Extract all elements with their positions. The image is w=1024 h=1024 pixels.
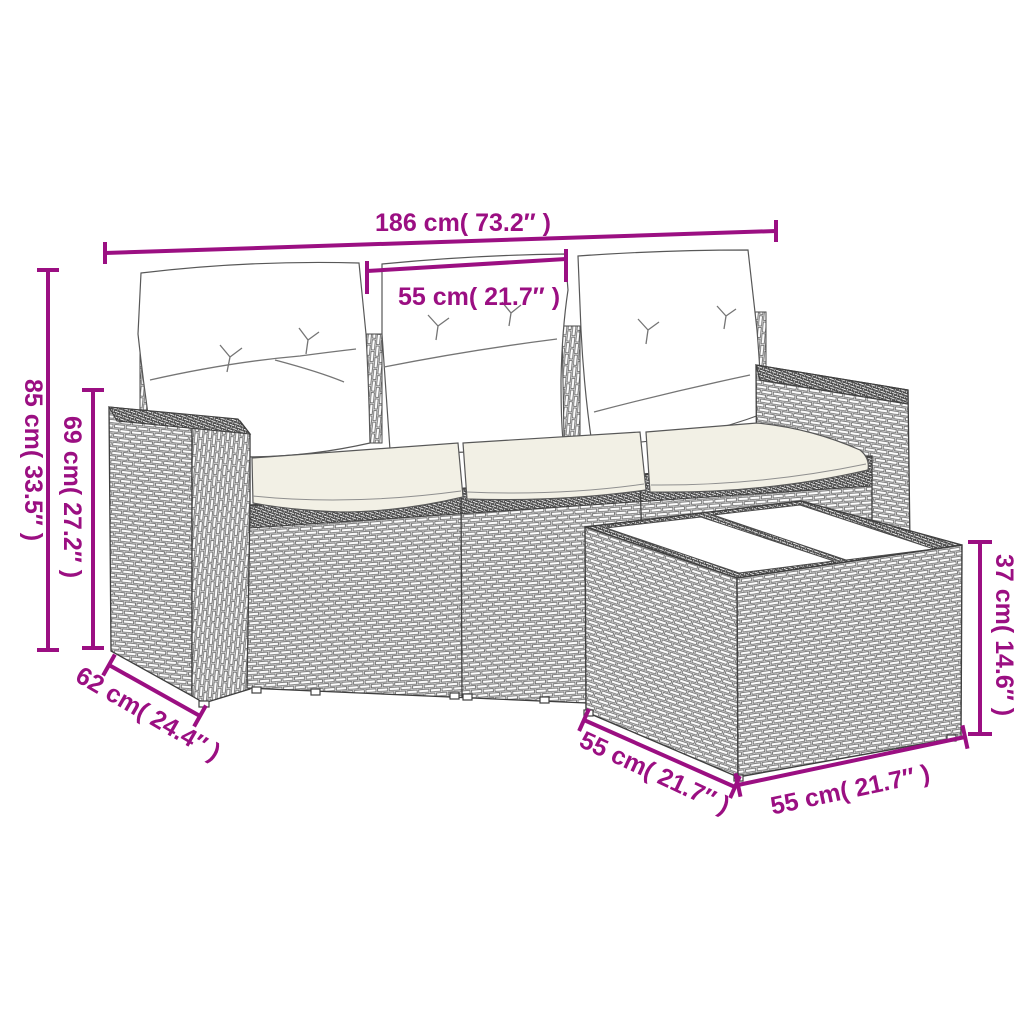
svg-text:186 cm( 73.2″ ): 186 cm( 73.2″ ) (375, 209, 551, 237)
svg-text:85 cm( 33.5″ ): 85 cm( 33.5″ ) (19, 379, 47, 541)
svg-text:69 cm( 27.2″ ): 69 cm( 27.2″ ) (58, 416, 86, 578)
svg-text:37 cm( 14.6″ ): 37 cm( 14.6″ ) (990, 554, 1018, 716)
svg-text:55 cm( 21.7″ ): 55 cm( 21.7″ ) (398, 283, 560, 311)
